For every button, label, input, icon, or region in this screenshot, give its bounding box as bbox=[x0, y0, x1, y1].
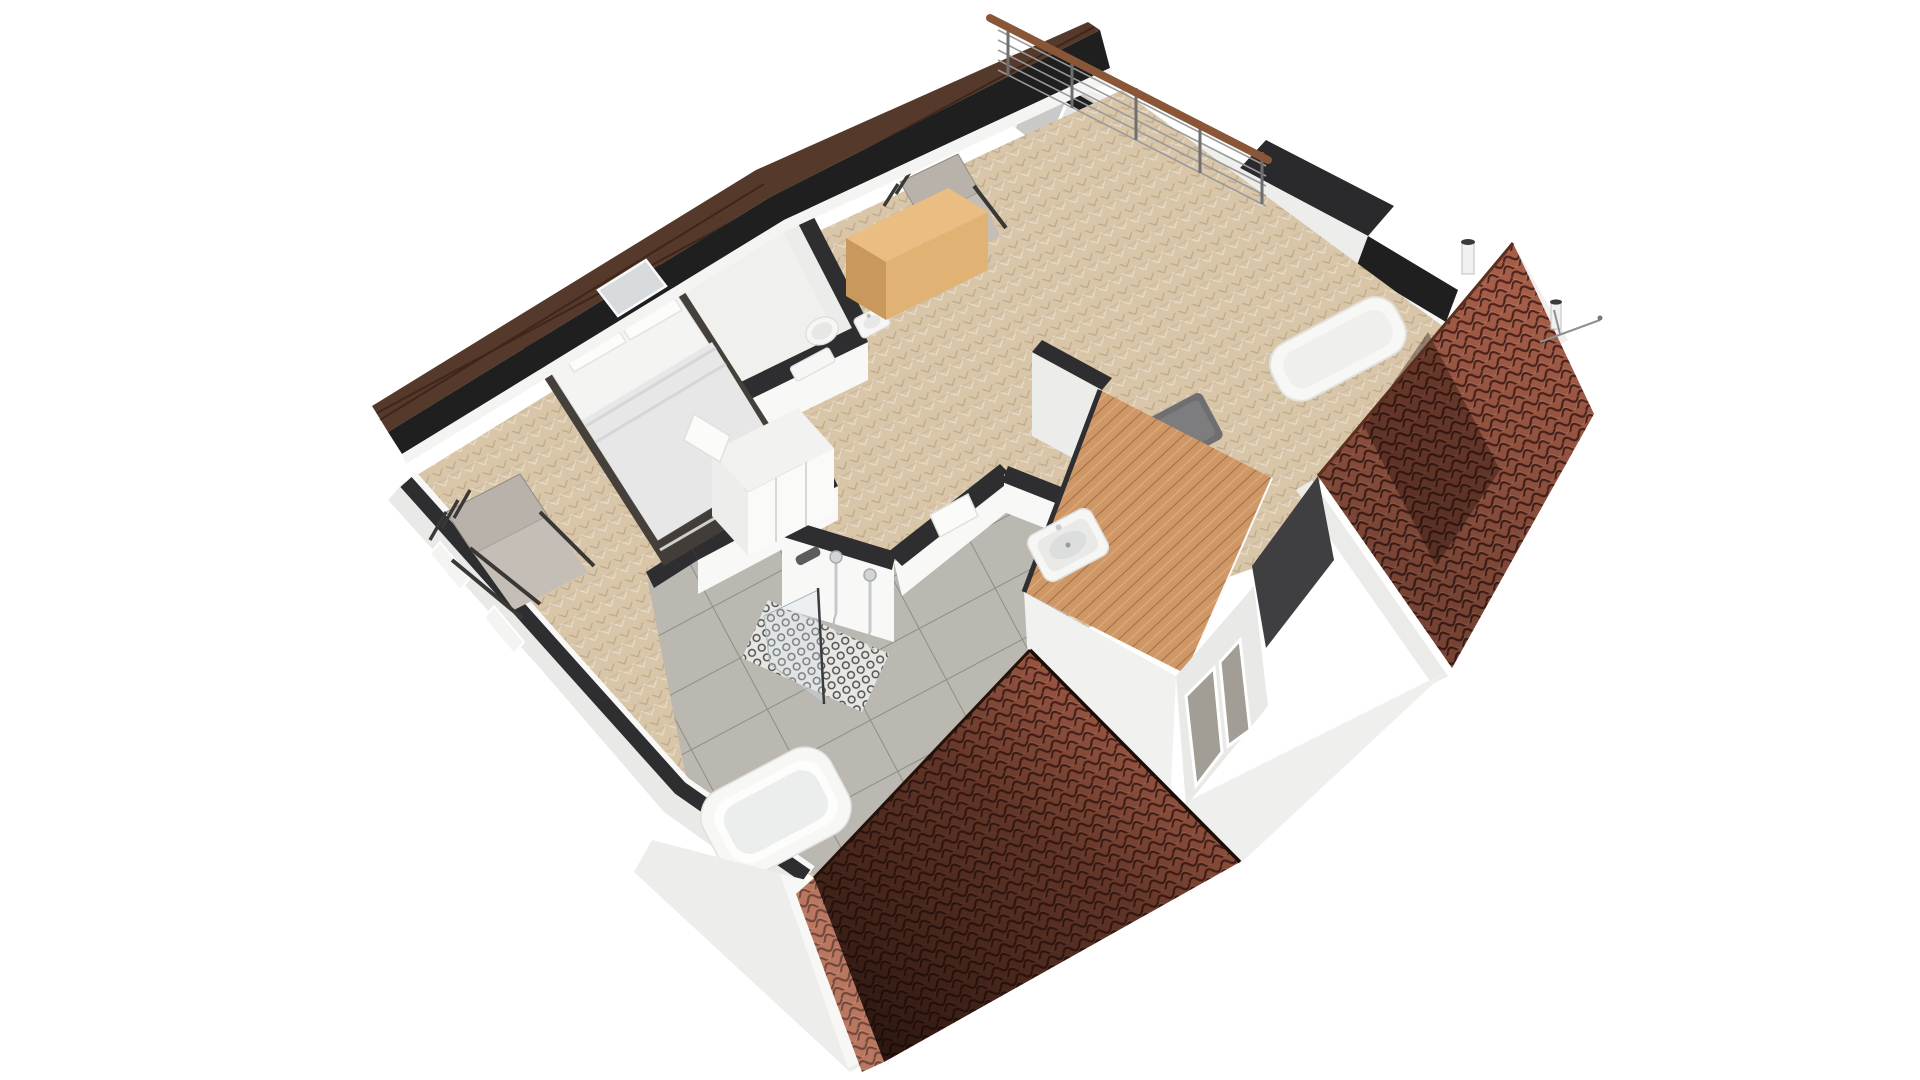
shower-head bbox=[864, 569, 876, 581]
shower-head bbox=[830, 551, 842, 563]
chimney-pipe bbox=[1461, 239, 1475, 274]
floorplan-3d-render bbox=[0, 0, 1920, 1080]
